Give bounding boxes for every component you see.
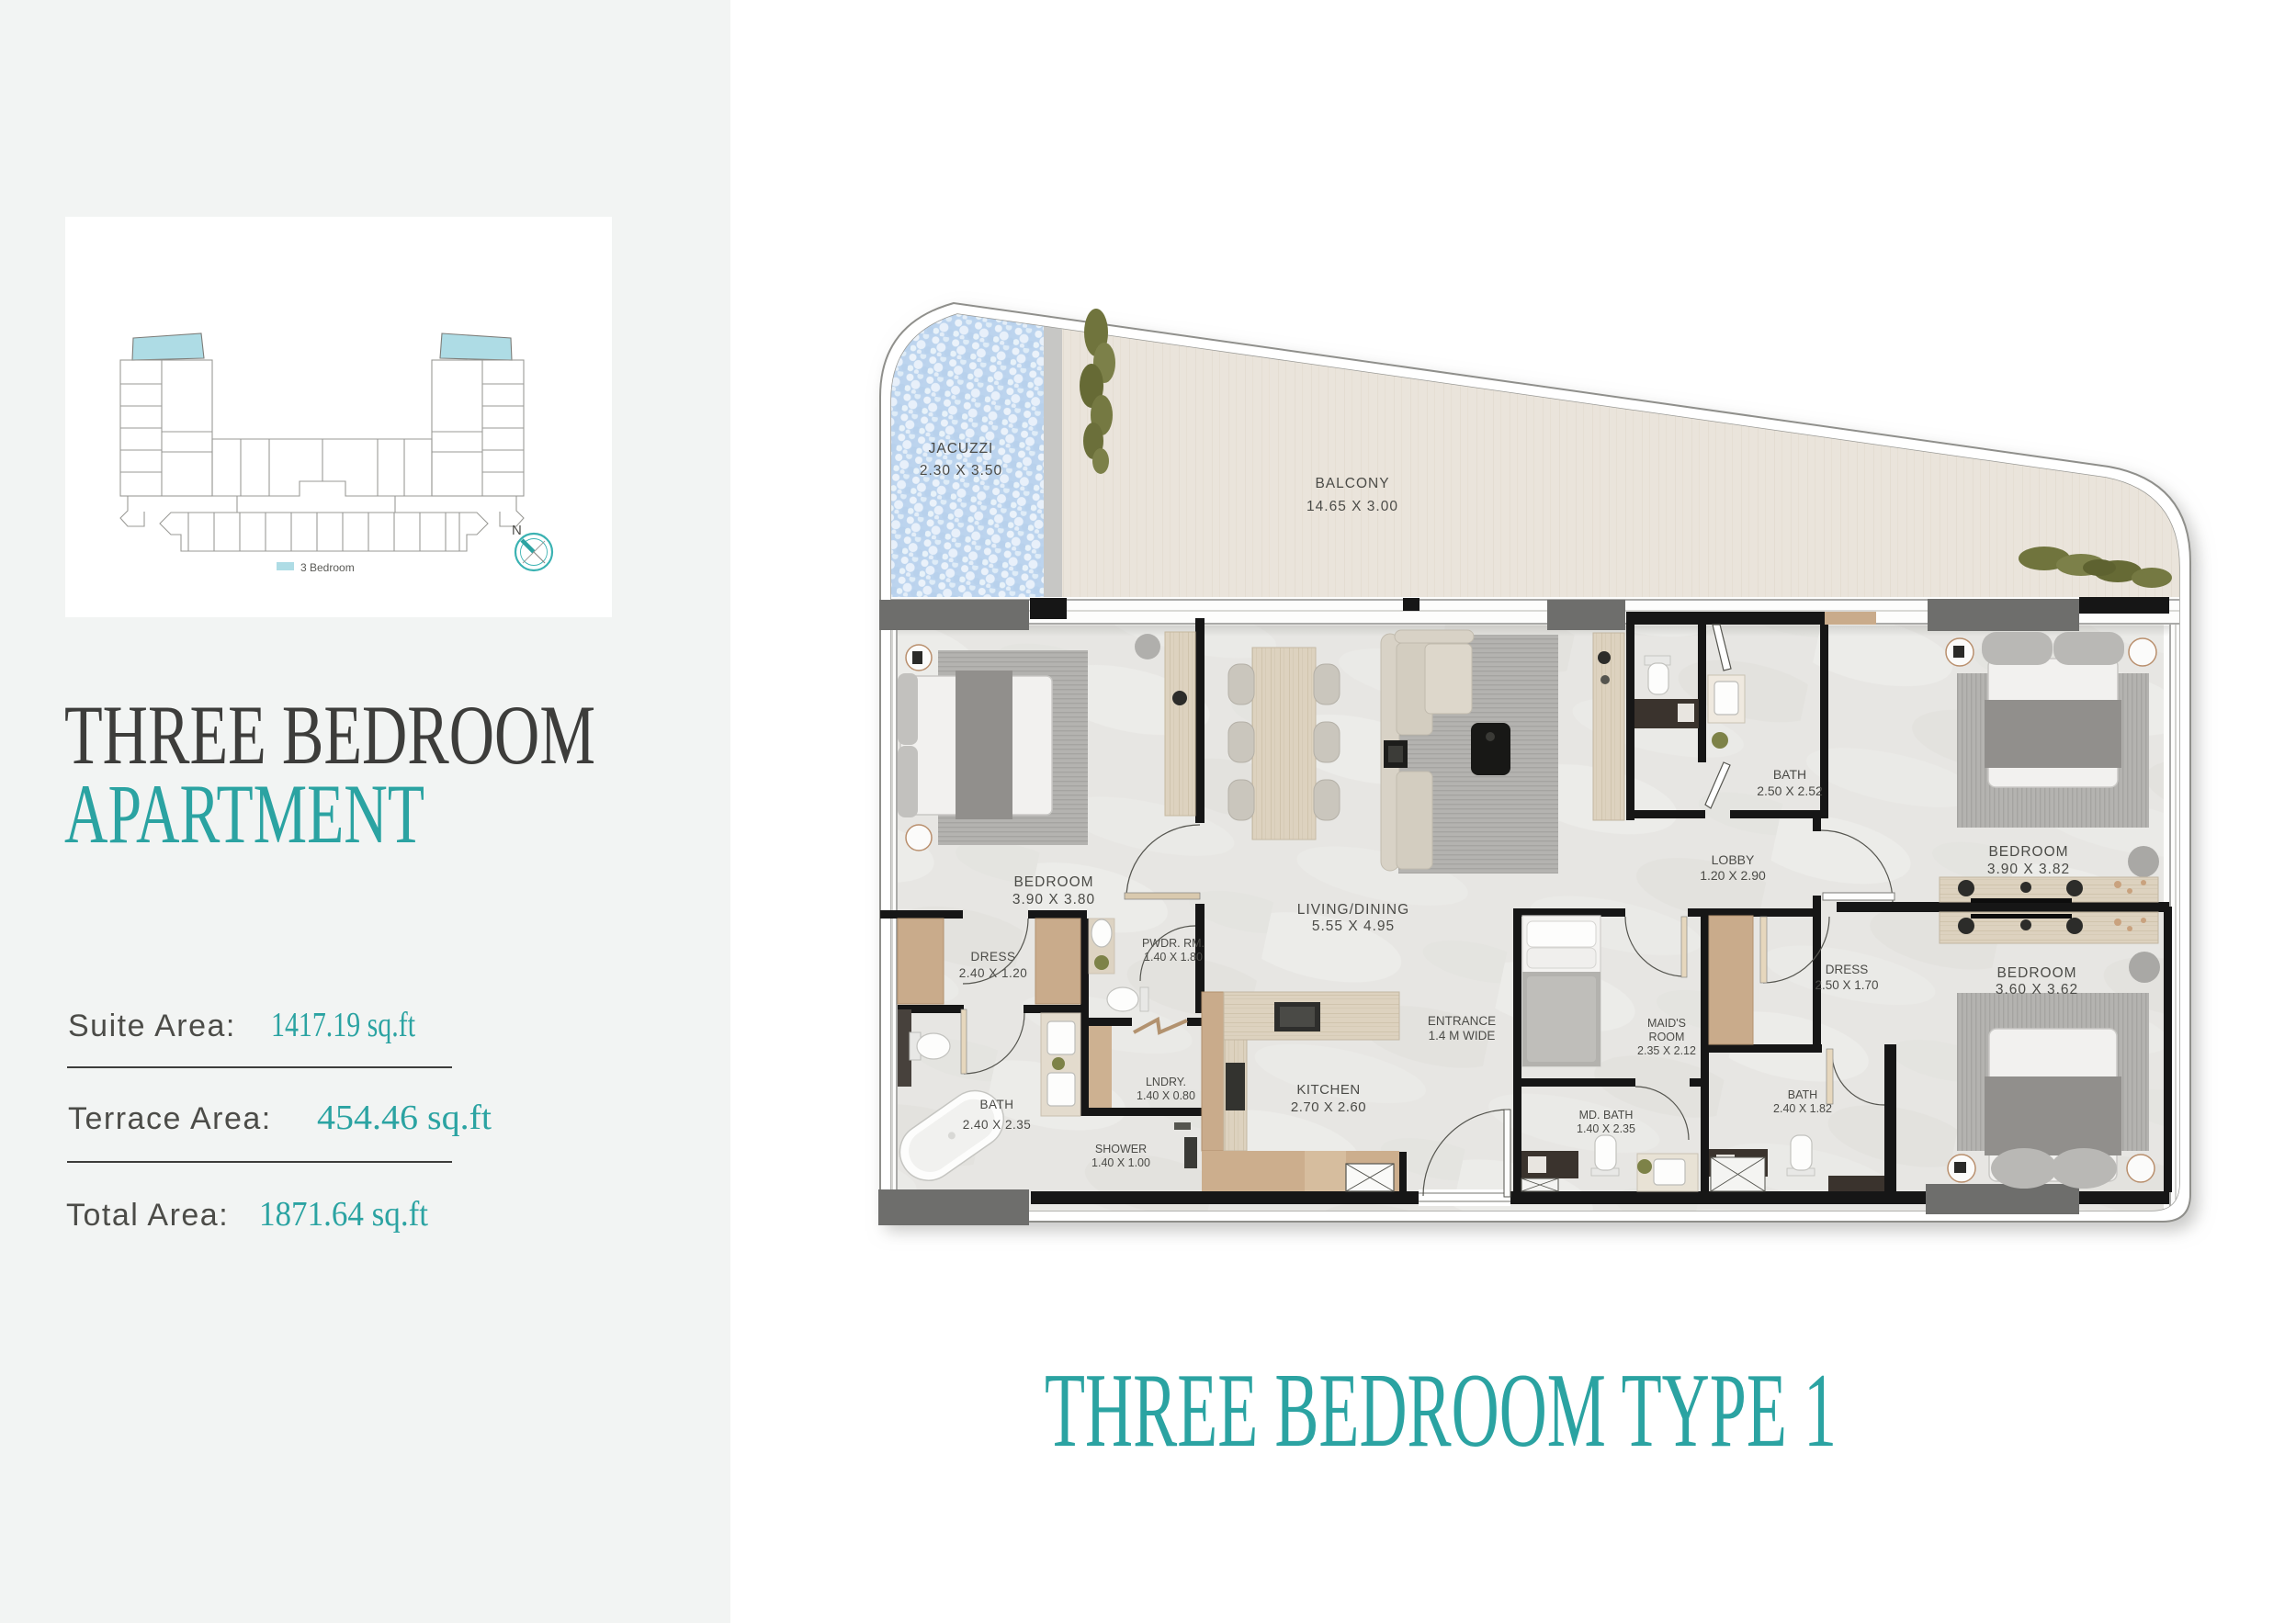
svg-text:3.90 X 3.82: 3.90 X 3.82 [1987,862,2070,877]
svg-text:1.40 X 1.80: 1.40 X 1.80 [1144,951,1203,964]
svg-text:BATH: BATH [1773,767,1806,782]
svg-text:2.35 X 2.12: 2.35 X 2.12 [1637,1044,1696,1057]
svg-text:MAID'S: MAID'S [1647,1017,1686,1030]
svg-text:MD. BATH: MD. BATH [1579,1109,1634,1121]
svg-text:1417.19 sq.ft: 1417.19 sq.ft [271,1006,415,1044]
svg-text:2.50 X 1.70: 2.50 X 1.70 [1815,978,1878,992]
svg-text:DRESS: DRESS [1826,963,1869,976]
svg-text:1.40 X 2.35: 1.40 X 2.35 [1577,1122,1635,1135]
svg-text:Terrace Area:: Terrace Area: [68,1101,272,1136]
svg-text:454.46 sq.ft: 454.46 sq.ft [317,1099,492,1137]
svg-text:APARTMENT: APARTMENT [64,767,424,861]
svg-text:BEDROOM: BEDROOM [1013,874,1093,890]
svg-text:2.30 X 3.50: 2.30 X 3.50 [920,463,1002,479]
svg-text:1.20 X 2.90: 1.20 X 2.90 [1700,868,1766,883]
svg-text:BALCONY: BALCONY [1315,476,1389,491]
svg-text:SHOWER: SHOWER [1095,1143,1147,1155]
svg-text:14.65 X 3.00: 14.65 X 3.00 [1306,499,1398,514]
svg-text:1.40 X 1.00: 1.40 X 1.00 [1091,1156,1150,1169]
svg-text:3.60 X 3.62: 3.60 X 3.62 [1996,982,2078,997]
svg-text:2.40 X 1.20: 2.40 X 1.20 [959,966,1028,980]
svg-text:1871.64 sq.ft: 1871.64 sq.ft [259,1195,428,1234]
svg-text:JACUZZI: JACUZZI [929,441,994,456]
svg-text:BEDROOM: BEDROOM [1996,965,2076,981]
svg-text:3.90 X 3.80: 3.90 X 3.80 [1012,892,1095,907]
svg-text:DRESS: DRESS [970,950,1015,964]
svg-text:ROOM: ROOM [1649,1031,1685,1043]
svg-text:LOBBY: LOBBY [1712,852,1755,867]
svg-text:BATH: BATH [1788,1088,1817,1101]
svg-text:1.4 M WIDE: 1.4 M WIDE [1429,1029,1496,1043]
svg-text:BATH: BATH [979,1098,1013,1111]
svg-text:2.70 X 2.60: 2.70 X 2.60 [1291,1099,1366,1115]
svg-text:2.40 X 2.35: 2.40 X 2.35 [963,1118,1032,1132]
svg-text:Total Area:: Total Area: [66,1198,229,1233]
svg-text:KITCHEN: KITCHEN [1296,1082,1360,1098]
svg-text:THREE BEDROOM TYPE 1: THREE BEDROOM TYPE 1 [1045,1352,1837,1470]
svg-text:2.50 X 2.52: 2.50 X 2.52 [1757,783,1823,798]
svg-text:2.40 X 1.82: 2.40 X 1.82 [1773,1102,1832,1115]
svg-text:N: N [512,523,522,538]
svg-text:LIVING/DINING: LIVING/DINING [1297,902,1409,918]
svg-text:ENTRANCE: ENTRANCE [1428,1014,1496,1028]
svg-text:5.55 X 4.95: 5.55 X 4.95 [1312,919,1395,934]
svg-text:1.40 X 0.80: 1.40 X 0.80 [1137,1089,1195,1102]
svg-text:Suite Area:: Suite Area: [68,1009,236,1043]
svg-text:BEDROOM: BEDROOM [1988,844,2068,860]
svg-text:LNDRY.: LNDRY. [1146,1076,1186,1088]
svg-text:3 Bedroom: 3 Bedroom [300,561,355,574]
